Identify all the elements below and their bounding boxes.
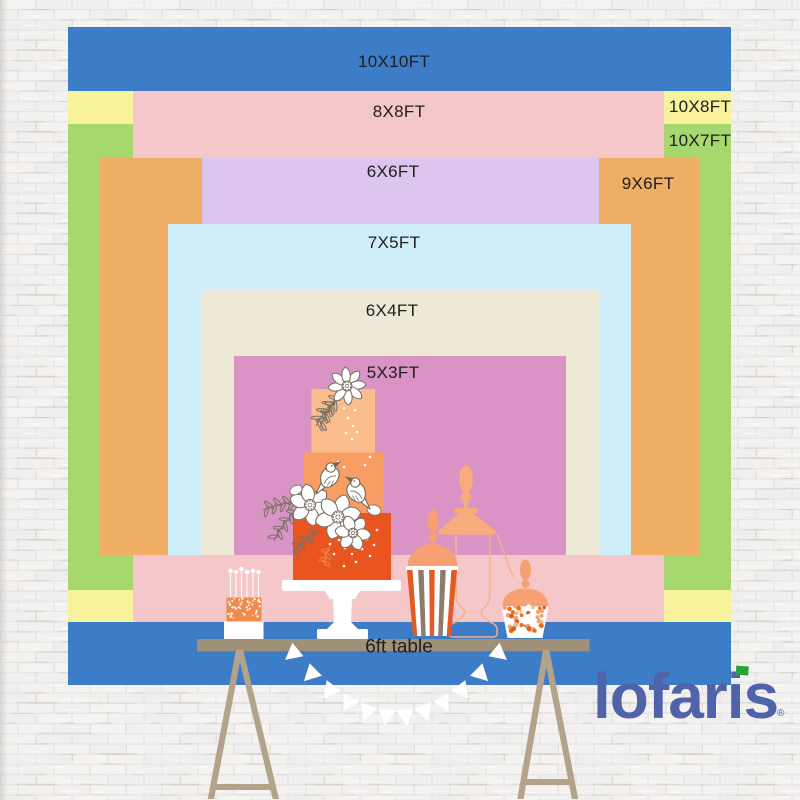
svg-text:lofaris: lofaris [593, 660, 778, 732]
svg-text:6ft table: 6ft table [365, 637, 433, 658]
svg-text:®: ® [777, 708, 785, 719]
